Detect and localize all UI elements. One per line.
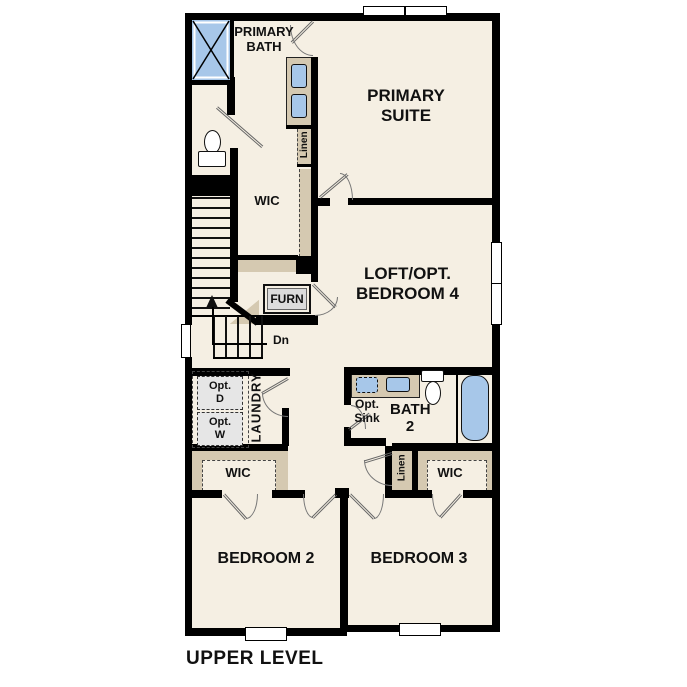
window xyxy=(491,242,502,284)
optional-washer-box: Opt. W xyxy=(197,412,243,446)
toilet-icon xyxy=(198,151,226,167)
wall-suite-south xyxy=(348,198,500,205)
bedroom2-label: BEDROOM 2 xyxy=(196,550,336,568)
window xyxy=(405,6,447,16)
wall xyxy=(296,256,318,274)
floor-plan: Opt. D Opt. W PRIMARY BATH PRIMARY SUITE… xyxy=(0,0,687,687)
optional-sink-icon xyxy=(356,377,378,393)
furnace-label: FURN xyxy=(270,292,303,306)
wall xyxy=(463,490,500,498)
window xyxy=(399,623,441,636)
wall xyxy=(311,198,330,206)
wall xyxy=(311,57,318,258)
wall-landing xyxy=(187,175,235,196)
wall xyxy=(412,446,418,496)
wall xyxy=(230,148,238,302)
window xyxy=(245,627,287,641)
primary-linen-label: Linen xyxy=(299,127,311,162)
furnace-closet-label-box: FURN xyxy=(263,284,311,314)
loft-label: LOFT/OPT. BEDROOM 4 xyxy=(330,264,485,305)
wall-right xyxy=(492,13,500,243)
bedroom3-wic-label: WIC xyxy=(420,466,480,481)
window xyxy=(491,283,502,325)
bedroom2-wic-label: WIC xyxy=(201,466,275,481)
wall xyxy=(385,490,432,498)
wall xyxy=(256,315,318,325)
stair-edge xyxy=(213,357,263,359)
stairs-arrow-shaft xyxy=(213,343,267,345)
optional-dryer-box: Opt. D xyxy=(197,376,243,410)
tub-surround xyxy=(456,372,458,443)
primary-wic-label: WIC xyxy=(242,194,292,209)
bath2-label: BATH 2 xyxy=(390,401,430,436)
wall xyxy=(344,438,386,446)
stairs-dn-label: Dn xyxy=(267,334,295,348)
hall-linen-label: Linen xyxy=(396,450,408,486)
wall xyxy=(272,490,305,498)
window xyxy=(363,6,405,16)
stairs-lower-run xyxy=(213,316,263,358)
sink-icon xyxy=(386,377,410,392)
wall xyxy=(238,255,298,260)
sink-icon xyxy=(291,64,307,88)
wall xyxy=(297,164,312,167)
sink-icon xyxy=(291,94,307,118)
bedroom3-label: BEDROOM 3 xyxy=(348,550,490,568)
shower-icon xyxy=(188,16,234,84)
stairs-arrow-shaft xyxy=(212,307,214,345)
wall xyxy=(392,443,500,451)
wic-shelf xyxy=(238,259,296,272)
primary-suite-label: PRIMARY SUITE xyxy=(346,86,466,127)
optional-dryer-label: Opt. D xyxy=(209,380,231,405)
wall-bedroom-divider xyxy=(340,490,348,632)
wall xyxy=(186,490,222,498)
wall xyxy=(311,274,318,282)
optional-sink-label: Opt. Sink xyxy=(346,398,388,426)
primary-bath-label: PRIMARY BATH xyxy=(232,25,296,55)
window xyxy=(181,324,191,358)
bathtub-icon xyxy=(461,375,489,441)
page-title: UPPER LEVEL xyxy=(186,648,386,670)
optional-washer-label: Opt. W xyxy=(209,416,231,441)
laundry-label: LAUNDRY xyxy=(250,368,265,446)
